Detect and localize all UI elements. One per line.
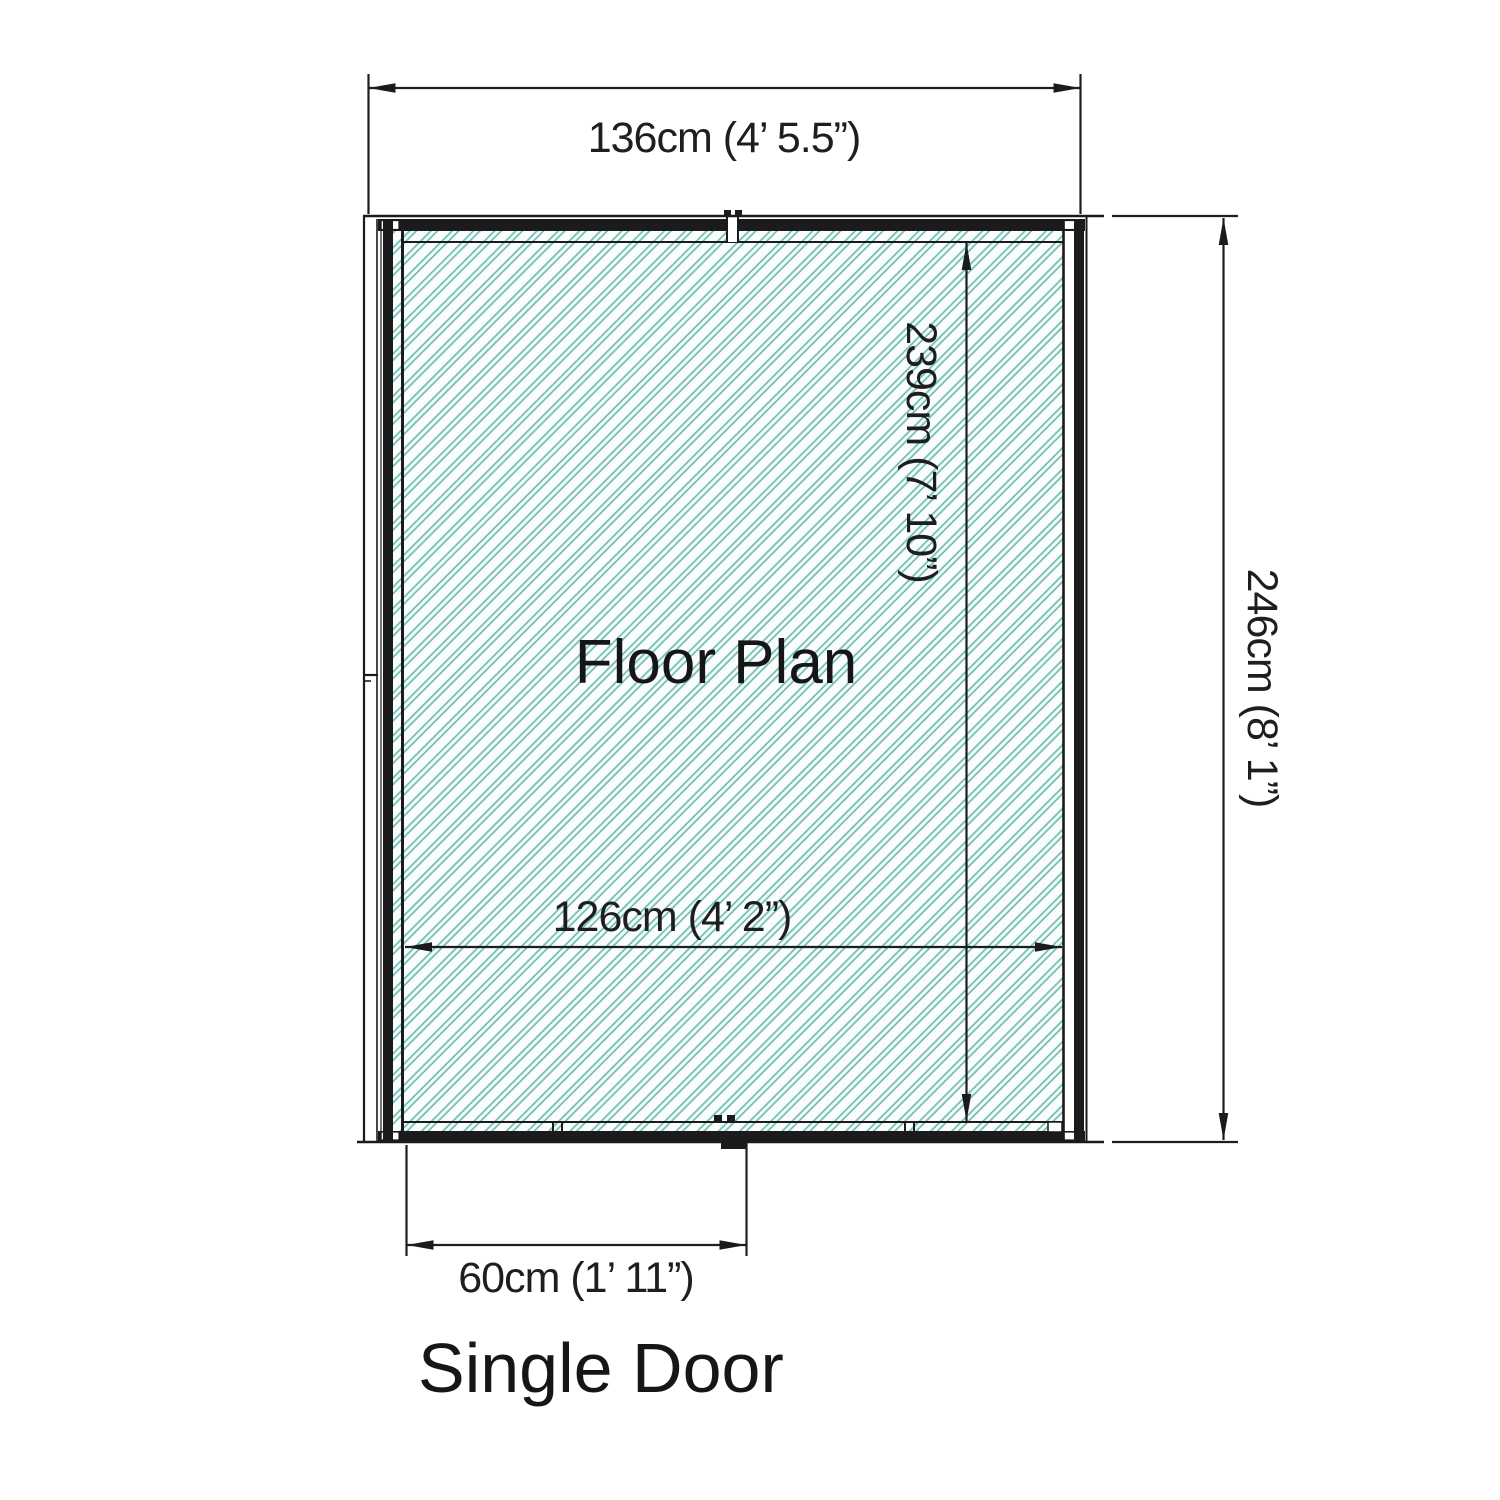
door-type-caption: Single Door	[418, 1329, 784, 1407]
dimension-outer-height: 246cm (8’ 1”)	[1112, 216, 1286, 1142]
door-leaf-tab	[721, 1143, 747, 1149]
dimension-outer-width: 136cm (4’ 5.5”)	[369, 74, 1081, 214]
door-hinge-tab-b	[727, 1115, 735, 1121]
wall-bottom-band	[378, 1131, 1085, 1141]
wall-left-band	[383, 219, 393, 1141]
dim-inner-width-label: 126cm (4’ 2”)	[553, 893, 792, 941]
wall-top-joint-tab-a	[724, 210, 731, 216]
wall-right	[1064, 216, 1087, 1142]
floor-plan-page: 136cm (4’ 5.5”) 246cm (8’ 1”) 239cm (7’ …	[0, 0, 1500, 1500]
dim-outer-width-label: 136cm (4’ 5.5”)	[588, 114, 861, 162]
dim-outer-height-label: 246cm (8’ 1”)	[1238, 569, 1286, 808]
door-hinge-tab-a	[714, 1115, 722, 1121]
wall-top-joint-tab-b	[735, 210, 742, 216]
dim-door-width-label: 60cm (1’ 11”)	[458, 1254, 694, 1302]
dimension-door-width: 60cm (1’ 11”)	[407, 1143, 747, 1302]
dim-inner-height-label: 239cm (7’ 10”)	[897, 321, 945, 583]
floor-plan-title: Floor Plan	[575, 628, 858, 697]
wall-right-band	[1074, 219, 1084, 1141]
floor-plan-drawing: 136cm (4’ 5.5”) 246cm (8’ 1”) 239cm (7’ …	[0, 0, 1500, 1500]
wall-bottom-stud-block	[1048, 1122, 1062, 1132]
